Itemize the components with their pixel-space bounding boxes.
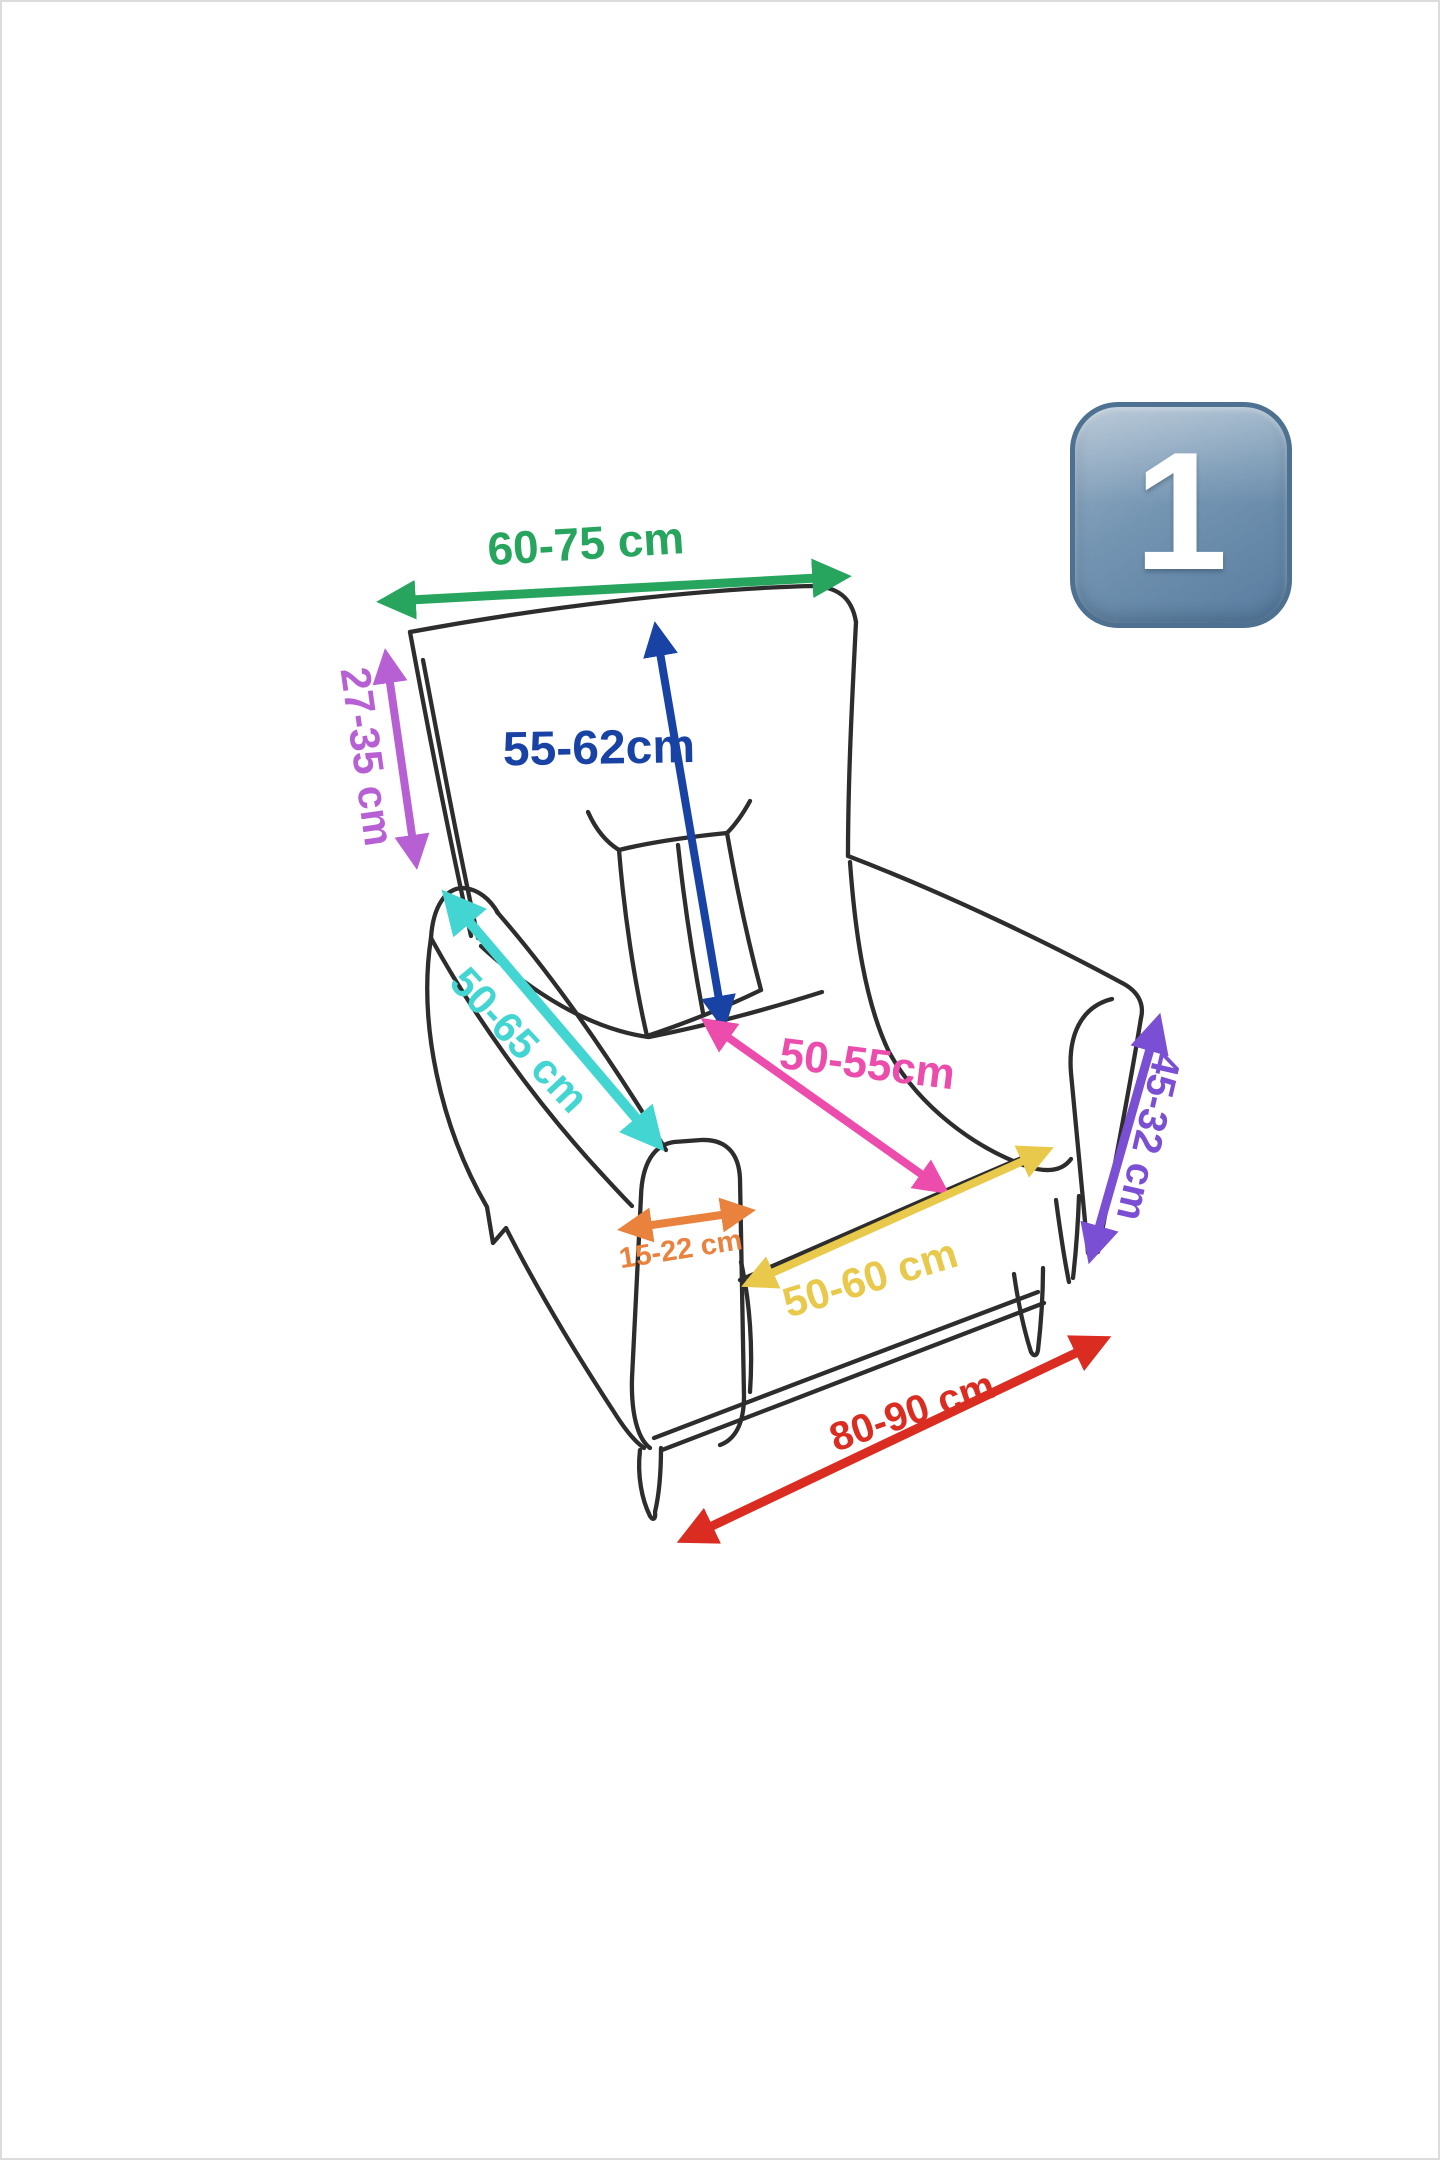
front-right-leg [1014, 1268, 1043, 1355]
pillow-left-horn [588, 812, 619, 850]
backrest-right-edge [848, 622, 856, 856]
back-right-leg [1056, 1196, 1079, 1282]
measurement-back-height: 27-35 cm [332, 662, 415, 856]
backrest-left-inner-edge [423, 660, 478, 938]
number-badge: 1 [1070, 402, 1292, 628]
measurement-armrest-width: 15-22 cm [617, 1212, 745, 1275]
armrest-width-label: 15-22 cm [617, 1224, 745, 1275]
left-arm-front-panel [632, 1140, 744, 1448]
seat-width-label: 50-60 cm [777, 1229, 963, 1327]
pillow-right-horn [727, 801, 750, 833]
measurement-armrest-length: 50-65 cm [441, 903, 653, 1138]
measurement-seat-width: 50-60 cm [754, 1153, 1041, 1326]
badge-digit: 1 [1134, 427, 1227, 595]
backrest-diagonal-label: 55-62cm [502, 720, 695, 776]
pillow-left-edge [619, 850, 647, 1036]
backrest-diagonal-arrow [657, 635, 722, 1017]
pillow-top-edge [619, 833, 727, 850]
right-arm-inner-edge [850, 862, 1071, 1170]
right-arm-outer-edge [848, 856, 1142, 1018]
top-width-label: 60-75 cm [486, 511, 686, 575]
armchair-dimension-diagram: 60-75 cm 27-35 cm 55-62cm 50-65 cm 50-55… [0, 0, 1440, 2160]
backrest-left-outer-edge [410, 632, 471, 936]
front-left-leg [639, 1448, 661, 1519]
measurement-arm-height: 45-32 cm [1093, 1028, 1189, 1249]
measurements: 60-75 cm 27-35 cm 55-62cm 50-65 cm 50-55… [332, 511, 1189, 1536]
page: 60-75 cm 27-35 cm 55-62cm 50-65 cm 50-55… [0, 0, 1440, 2160]
left-arm-silhouette [427, 938, 644, 1448]
pillow-right-edge [727, 833, 761, 990]
measurement-seat-depth: 50-55cm [712, 1026, 958, 1186]
